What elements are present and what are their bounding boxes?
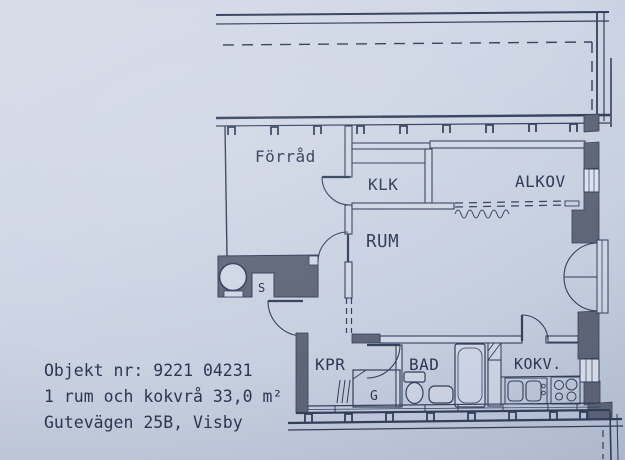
wall-kpr-left [296,333,308,413]
door-klk [322,177,350,205]
bathtub [455,344,485,407]
room-label-bad: BAD [409,355,439,374]
toilet-bowl [406,383,423,404]
faucet-dot [542,384,546,388]
door-balcony-double [564,243,598,311]
shaft-base [224,291,243,297]
hall-furnishings [337,370,400,407]
shaft-notch [309,256,318,265]
door-forrad [318,232,348,262]
door-bad [367,345,400,378]
bathroom-fixtures [404,343,501,407]
room-label-rum: RUM [366,232,399,252]
footer-info: Objekt nr: 9221 04231 1 rum och kokvrå 3… [44,361,282,432]
window-kokv [580,359,599,382]
faucet-dot [542,391,546,395]
object-number-line: Objekt nr: 9221 04231 [44,361,253,380]
balcony-top [216,12,611,127]
walkway-bottom [288,411,623,460]
door-entrance [268,301,303,336]
window-alkov [584,169,599,192]
balcony-door-frame [597,240,608,313]
chimney-shaft-block: S [218,255,318,297]
kitchen-fixtures [501,376,580,404]
room-label-klk: KLK [368,175,398,194]
address-line: Gutevägen 25B, Visby [44,413,243,432]
room-label-alkov: ALKOV [515,172,566,191]
room-label-kokv: KOKV. [514,355,562,373]
radiator-squiggle [455,210,509,218]
shaft-circle [220,264,247,291]
radiator-alkov [565,201,579,206]
size-line: 1 rum och kokvrå 33,0 m² [44,387,282,406]
room-label-forrad: Förråd [255,147,316,166]
dashed-openings [347,201,567,333]
sink-bowl-left [508,381,523,401]
sink-bowl-right [526,381,541,401]
wardrobe-letter: G [370,389,378,404]
door-kokv [522,315,548,341]
washbasin [429,386,453,403]
coat-hooks [337,380,350,403]
floorplan-scan: S [0,0,625,460]
room-label-kpr: KPR [315,355,345,374]
stove [551,377,580,404]
wall-forrad-left [225,126,227,257]
vent-shaft [488,343,501,360]
shaft-letter: S [258,281,266,295]
floorplan-drawing: S [0,0,625,460]
outer-wall-top [216,114,610,135]
